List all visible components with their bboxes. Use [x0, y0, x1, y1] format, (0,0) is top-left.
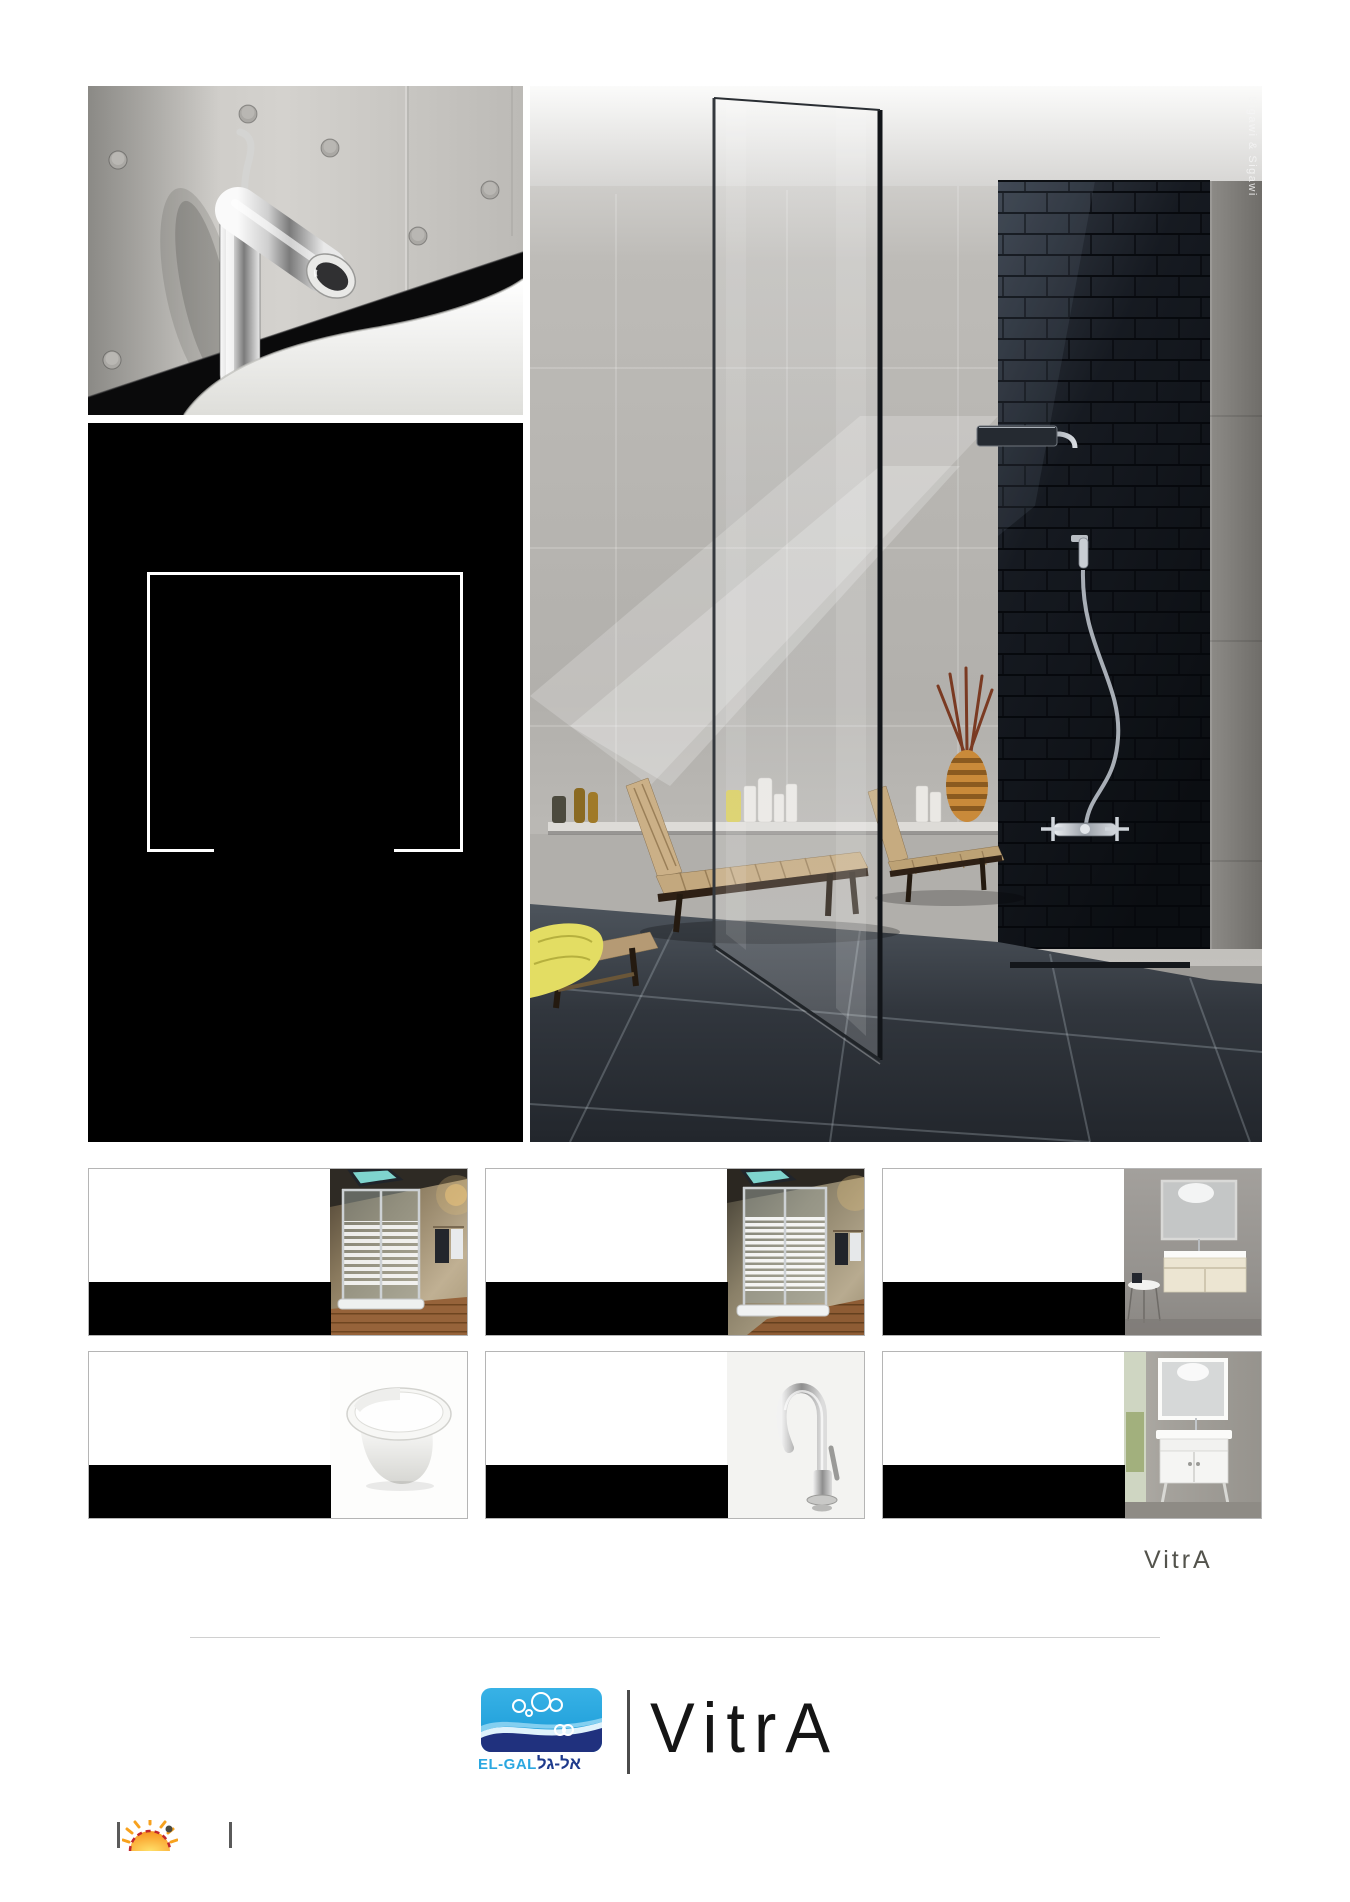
footer-bar-right — [229, 1822, 232, 1848]
elgal-hebrew-text: אל-גל — [537, 1754, 581, 1773]
footer-bar-left — [117, 1822, 120, 1848]
card-black-bar — [89, 1465, 331, 1518]
wall-hung-vanity-photo — [1124, 1169, 1261, 1335]
counter — [1164, 1251, 1246, 1258]
corner-shower-striped-glass-photo — [330, 1169, 467, 1335]
floor-standing-vanity-photo — [1124, 1352, 1261, 1518]
bathroom-hero-photo: Sigawi & Sigawi — [530, 86, 1262, 1142]
card-black-bar — [486, 1465, 728, 1518]
glass-partition — [714, 98, 880, 1064]
right-stone-wall — [1210, 181, 1262, 949]
elgal-latin-text: EL-GAL — [478, 1756, 537, 1773]
shower-cabin-striped-glass-photo — [727, 1169, 864, 1335]
logo-separator — [627, 1690, 630, 1774]
photo-credit: Sigawi & Sigawi — [1246, 96, 1258, 197]
white-frame-outline — [147, 572, 463, 853]
card-black-bar — [883, 1282, 1125, 1335]
floor-drain — [1010, 962, 1190, 968]
divider-line — [190, 1637, 1160, 1638]
product-card-vanity-floor — [882, 1351, 1262, 1519]
vitra-small-mark: VitrA — [1144, 1546, 1264, 1575]
card-black-bar — [883, 1465, 1125, 1518]
vitra-logo: VitrA — [650, 1688, 910, 1769]
black-panel — [88, 423, 523, 1142]
catalog-page: Sigawi & Sigawi — [0, 0, 1350, 1902]
faucet-photo — [88, 86, 523, 415]
product-card-shower-2 — [485, 1168, 865, 1336]
card-black-bar — [486, 1282, 728, 1335]
product-card-shower-1 — [88, 1168, 468, 1336]
product-card-vanity-wall-hung — [882, 1168, 1262, 1336]
faucet-photo-art — [88, 86, 523, 415]
gooseneck-basin-mixer-photo — [727, 1352, 864, 1518]
card-black-bar — [89, 1282, 331, 1335]
hand-shower — [1079, 538, 1088, 568]
sun-icon — [122, 1820, 178, 1857]
product-card-toilet — [88, 1351, 468, 1519]
wall-hung-toilet-photo — [330, 1352, 467, 1518]
hero-art — [530, 86, 1262, 1142]
counter — [1156, 1430, 1232, 1439]
product-card-faucet — [485, 1351, 865, 1519]
elgal-logo — [481, 1688, 602, 1752]
rain-head — [977, 426, 1057, 446]
elgal-wordmark: EL-GALאל-גל — [478, 1754, 618, 1774]
